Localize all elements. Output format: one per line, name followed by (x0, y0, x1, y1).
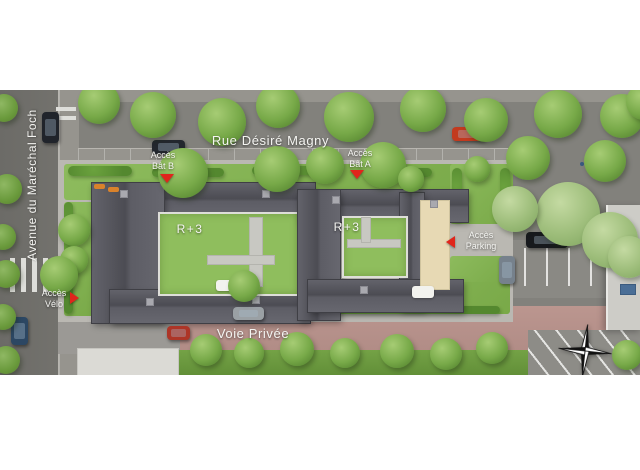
roof-vent (262, 190, 270, 198)
car-icon (42, 112, 59, 143)
building-label-bat-a: R+3 (325, 220, 369, 234)
tree-icon (234, 338, 264, 368)
roof-vent (360, 286, 368, 294)
car-icon (499, 256, 515, 284)
access-label-parking: Accès Parking (457, 230, 505, 252)
neighbor-roof-south (77, 348, 179, 375)
lounger-icon (94, 184, 105, 189)
roof-path (208, 256, 274, 264)
tree-icon (492, 186, 538, 232)
access-marker-bat-a-icon (350, 170, 364, 179)
tree-icon (464, 156, 490, 182)
site-plan: Rue Désiré Magny Avenue du Maréchal Foch… (0, 90, 640, 375)
access-label-bat-a: Accès Bât A (336, 148, 384, 170)
roof-vent (146, 298, 154, 306)
crosswalk-icon (56, 102, 76, 120)
tree-icon (58, 214, 90, 246)
street-label-avenue: Avenue du Maréchal Foch (25, 105, 41, 265)
roof-vent (332, 196, 340, 204)
tree-icon (464, 98, 508, 142)
tree-icon (534, 90, 582, 138)
tree-icon (130, 92, 176, 138)
tree-icon (254, 146, 300, 192)
hedge (68, 166, 132, 176)
access-line1: Accès (336, 148, 384, 159)
roof-vent (120, 190, 128, 198)
compass-rose-icon (553, 319, 617, 375)
access-marker-bat-b-icon (160, 174, 174, 183)
tree-icon (228, 270, 260, 302)
tree-icon (506, 136, 550, 180)
parking-line (524, 248, 526, 286)
dining-table-icon (412, 286, 434, 298)
solar-panel-icon (620, 284, 636, 295)
tree-icon (476, 332, 508, 364)
tree-icon (584, 140, 626, 182)
street-label-rue: Rue Désiré Magny (178, 133, 363, 148)
access-marker-parking-icon (446, 236, 455, 248)
tree-icon (430, 338, 462, 370)
tree-icon (380, 334, 414, 368)
access-marker-velo-icon (70, 292, 79, 304)
building-label-bat-b: R+3 (168, 222, 212, 236)
tree-icon (330, 338, 360, 368)
access-line2: Parking (457, 241, 505, 252)
parking-line (568, 248, 570, 286)
roof-vent (430, 200, 438, 208)
street-label-voie-privee: Voie Privée (183, 326, 323, 341)
access-line2: Bât B (139, 161, 187, 172)
parking-line (546, 248, 548, 286)
access-line1: Accès (457, 230, 505, 241)
access-line1: Accès (139, 150, 187, 161)
car-icon (233, 307, 264, 320)
tree-icon (398, 166, 424, 192)
access-line2: Bât A (336, 159, 384, 170)
tree-icon (612, 340, 640, 370)
roof-path (348, 240, 400, 247)
site-plan-image: Rue Désiré Magny Avenue du Maréchal Foch… (0, 0, 640, 470)
lounger-icon (108, 187, 119, 192)
access-label-bat-b: Accès Bât B (139, 150, 187, 172)
